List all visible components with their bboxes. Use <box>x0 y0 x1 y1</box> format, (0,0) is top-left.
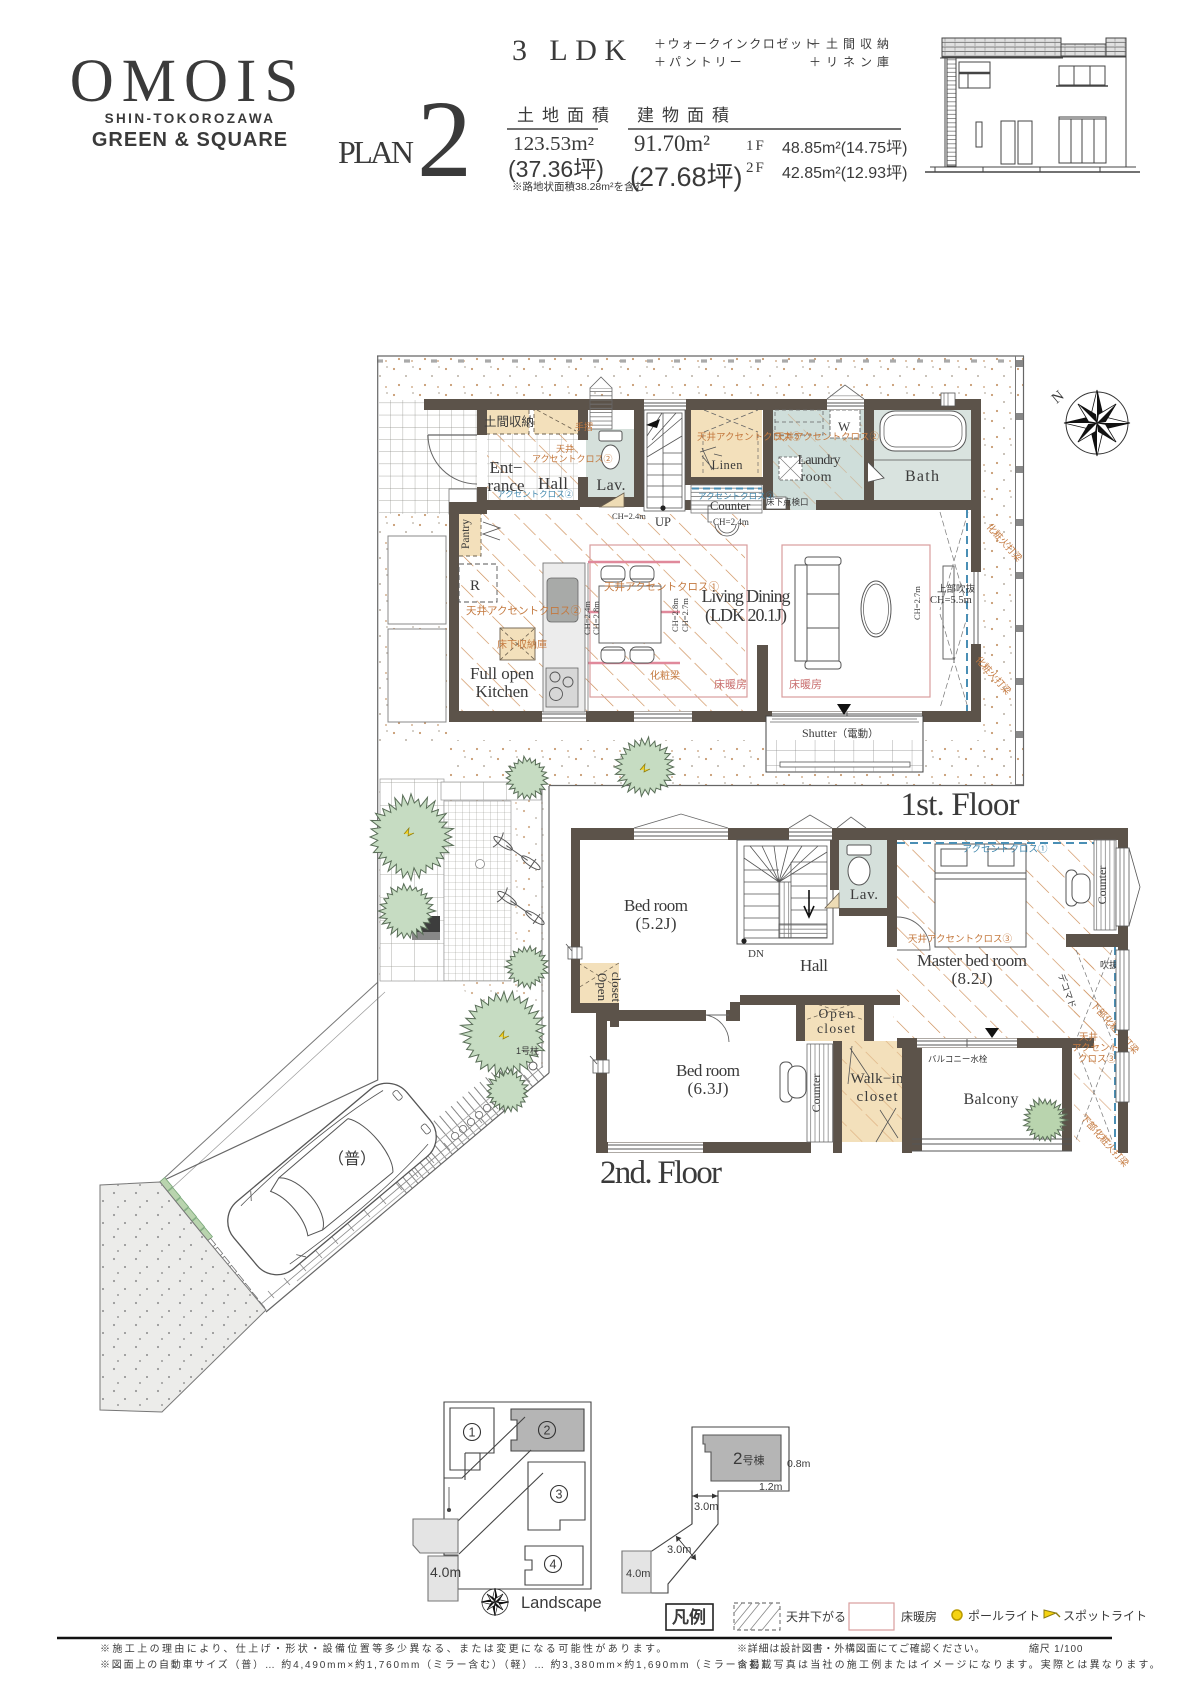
svg-text:4: 4 <box>550 1558 557 1572</box>
svg-text:CH=2.8m: CH=2.8m <box>670 598 680 632</box>
svg-text:CH=2.7m: CH=2.7m <box>680 598 690 632</box>
svg-text:Counter: Counter <box>809 1074 823 1113</box>
svg-text:アクセントクロス①: アクセントクロス① <box>962 844 1048 855</box>
svg-text:(8.2J): (8.2J) <box>952 969 993 988</box>
svg-text:＋パントリー: ＋パントリー <box>654 55 745 69</box>
svg-text:※施工上の理由により、仕上げ・形状・設備位置等多少異なる、ま: ※施工上の理由により、仕上げ・形状・設備位置等多少異なる、または変更になる可能性… <box>100 1642 669 1655</box>
svg-text:DN: DN <box>748 948 764 960</box>
svg-text:※図面上の自動車サイズ（普）… 約4,490mm×約1,76: ※図面上の自動車サイズ（普）… 約4,490mm×約1,760mm（ミラー含む）… <box>100 1658 773 1671</box>
svg-text:42.85m²(12.93坪): 42.85m²(12.93坪) <box>782 164 907 182</box>
svg-text:床下収納庫: 床下収納庫 <box>497 638 547 651</box>
svg-text:91.70m²: 91.70m² <box>634 131 710 156</box>
svg-text:バルコニー水栓: バルコニー水栓 <box>928 1054 988 1064</box>
svg-text:1st. Floor: 1st. Floor <box>901 787 1020 823</box>
svg-text:1: 1 <box>469 1426 476 1440</box>
svg-text:SHIN-TOKOROZAWA: SHIN-TOKOROZAWA <box>105 111 276 126</box>
svg-text:UP: UP <box>655 515 671 529</box>
svg-text:＋土間収納: ＋土間収納 <box>809 37 894 51</box>
svg-text:3.0m: 3.0m <box>694 1501 718 1513</box>
svg-text:Shutter（電動）: Shutter（電動） <box>802 726 879 740</box>
svg-text:吹抜: 吹抜 <box>1100 959 1118 970</box>
svg-text:※掲載写真は当社の施工例またはイメージになります。実際とは異: ※掲載写真は当社の施工例またはイメージになります。実際とは異なります。 <box>737 1658 1162 1671</box>
svg-text:天井アクセントクロス③: 天井アクセントクロス③ <box>908 933 1013 945</box>
svg-text:Open: Open <box>819 1006 854 1021</box>
svg-text:R: R <box>470 578 480 594</box>
svg-text:凡例: 凡例 <box>672 1607 706 1627</box>
svg-text:Counter: Counter <box>1095 866 1109 905</box>
svg-text:Full open: Full open <box>470 664 535 683</box>
svg-text:closet: closet <box>609 972 624 1003</box>
svg-text:Laundry: Laundry <box>798 453 841 468</box>
svg-text:3.0m: 3.0m <box>667 1544 691 1556</box>
svg-text:Balcony: Balcony <box>964 1091 1019 1108</box>
svg-text:スポットライト: スポットライト <box>1063 1609 1147 1623</box>
svg-text:床暖房: 床暖房 <box>901 1609 937 1624</box>
svg-text:床暖房: 床暖房 <box>789 677 822 691</box>
svg-text:Bath: Bath <box>905 468 939 485</box>
svg-text:Hall: Hall <box>800 956 828 975</box>
svg-text:3: 3 <box>556 1488 563 1502</box>
svg-text:アクセントクロス②: アクセントクロス② <box>698 491 775 501</box>
svg-text:4.0m: 4.0m <box>430 1564 461 1580</box>
svg-text:Lav.: Lav. <box>597 477 626 494</box>
svg-text:上部吹抜: 上部吹抜 <box>937 583 976 595</box>
svg-text:※路地状面積38.28m²を含む: ※路地状面積38.28m²を含む <box>512 180 645 193</box>
svg-text:天井下がる: 天井下がる <box>786 1609 846 1624</box>
svg-text:(27.68坪): (27.68坪) <box>630 162 743 192</box>
svg-text:Bed room: Bed room <box>676 1061 740 1080</box>
svg-text:天井アクセントクロス②: 天井アクセントクロス② <box>466 604 581 617</box>
svg-text:アクセントクロス②: アクセントクロス② <box>532 454 613 464</box>
svg-text:2: 2 <box>544 1424 551 1438</box>
svg-text:1号柱: 1号柱 <box>516 1045 539 1056</box>
svg-text:（普）: （普） <box>328 1150 376 1168</box>
svg-text:天井: 天井 <box>1079 1031 1098 1043</box>
svg-text:Pantry: Pantry <box>460 519 472 549</box>
svg-text:Walk−in: Walk−in <box>851 1071 905 1087</box>
svg-text:room: room <box>801 470 832 485</box>
svg-text:2F: 2F <box>746 160 766 176</box>
svg-text:CH=2.8m: CH=2.8m <box>591 601 601 635</box>
svg-text:1.2m: 1.2m <box>759 1481 783 1493</box>
svg-text:4.0m: 4.0m <box>626 1568 650 1580</box>
svg-text:クロス③: クロス③ <box>1078 1054 1117 1065</box>
svg-text:天井アクセントクロス①: 天井アクセントクロス① <box>604 580 719 593</box>
svg-text:CH=5.5m: CH=5.5m <box>930 595 972 606</box>
svg-text:Counter: Counter <box>710 499 751 513</box>
svg-text:(37.36坪): (37.36坪) <box>508 156 604 182</box>
svg-text:Master bed room: Master bed room <box>917 951 1027 970</box>
svg-text:Linen: Linen <box>712 458 744 472</box>
svg-text:土間収納: 土間収納 <box>484 415 534 429</box>
svg-text:OMOIS: OMOIS <box>70 48 307 115</box>
svg-text:床暖房: 床暖房 <box>714 677 747 691</box>
svg-text:3 LDK: 3 LDK <box>512 34 632 67</box>
svg-text:＋リネン庫: ＋リネン庫 <box>809 55 894 69</box>
svg-text:アクセント: アクセント <box>1072 1043 1119 1054</box>
svg-text:(LDK 20.1J): (LDK 20.1J) <box>705 605 787 626</box>
svg-text:123.53m²: 123.53m² <box>513 133 594 155</box>
svg-text:2nd. Floor: 2nd. Floor <box>600 1155 722 1191</box>
svg-text:Open: Open <box>595 973 610 1002</box>
svg-text:手摺: 手摺 <box>575 421 593 432</box>
svg-text:Kitchen: Kitchen <box>476 682 530 701</box>
svg-text:CH=2.4m: CH=2.4m <box>612 511 646 521</box>
svg-text:48.85m²(14.75坪): 48.85m²(14.75坪) <box>782 139 907 157</box>
svg-text:2: 2 <box>417 78 472 200</box>
svg-text:PLAN: PLAN <box>338 134 414 170</box>
svg-text:天井: 天井 <box>556 443 574 454</box>
svg-text:天井アクセントクロス②: 天井アクセントクロス② <box>775 431 880 443</box>
svg-text:建物面積: 建物面積 <box>637 106 737 125</box>
svg-text:(5.2J): (5.2J) <box>636 914 677 933</box>
svg-text:アクセントクロス②: アクセントクロス② <box>497 489 574 499</box>
svg-text:1F: 1F <box>746 138 766 154</box>
svg-text:0.8m: 0.8m <box>787 1458 811 1470</box>
svg-text:＋ウォークインクロゼット: ＋ウォークインクロゼット <box>654 37 817 51</box>
svg-text:CH=2.7m: CH=2.7m <box>912 586 922 620</box>
svg-text:Ent−: Ent− <box>490 458 523 477</box>
svg-text:※詳細は設計図書・外構図面にてご確認ください。: ※詳細は設計図書・外構図面にてご確認ください。 <box>737 1642 985 1655</box>
svg-text:Landscape: Landscape <box>521 1594 602 1612</box>
svg-text:化粧梁: 化粧梁 <box>650 669 680 682</box>
svg-text:床下点検口: 床下点検口 <box>766 497 809 507</box>
svg-text:Lav.: Lav. <box>850 887 878 903</box>
svg-text:Bed room: Bed room <box>624 896 688 915</box>
svg-text:土地面積: 土地面積 <box>517 106 617 125</box>
svg-text:ポールライト: ポールライト <box>968 1609 1040 1623</box>
svg-text:縮尺 1/100: 縮尺 1/100 <box>1029 1642 1083 1655</box>
svg-text:GREEN & SQUARE: GREEN & SQUARE <box>92 129 288 151</box>
svg-text:(6.3J): (6.3J) <box>688 1079 729 1098</box>
